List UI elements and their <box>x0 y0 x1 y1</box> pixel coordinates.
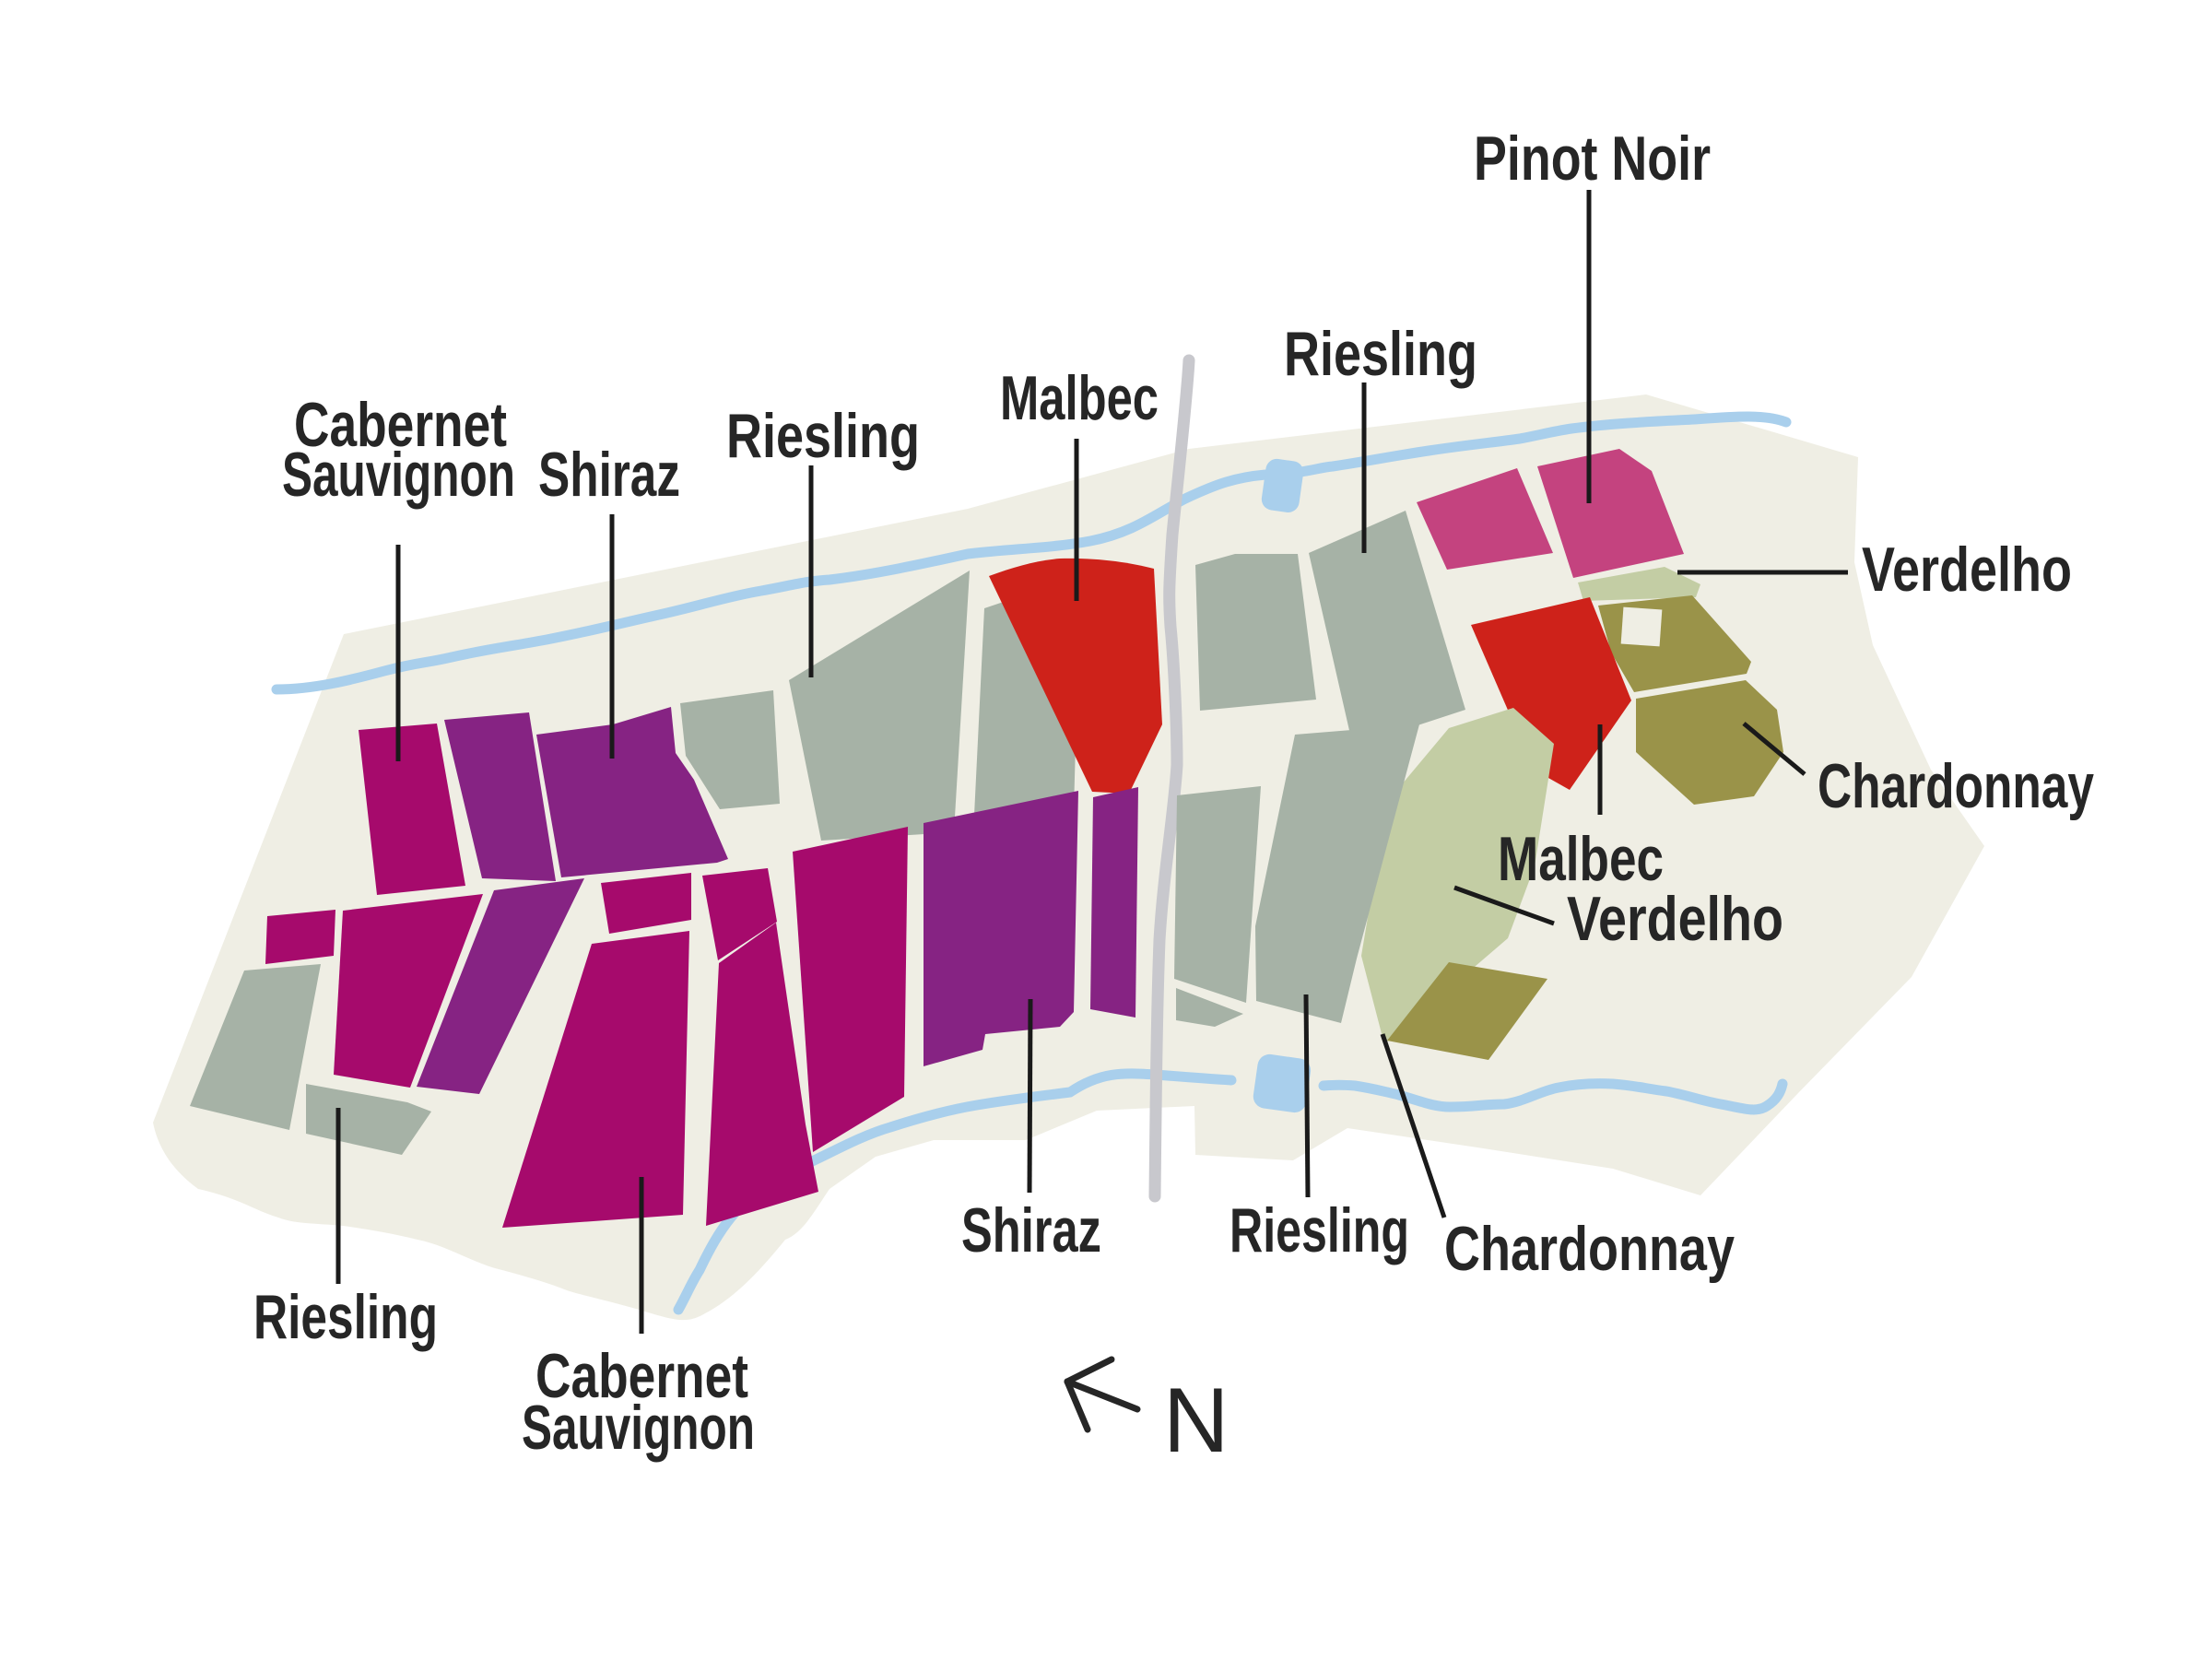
svg-text:Verdelho: Verdelho <box>1862 535 2072 605</box>
svg-text:Riesling: Riesling <box>726 401 920 471</box>
svg-text:Chardonnay: Chardonnay <box>1818 751 2094 821</box>
svg-text:Pinot Noir: Pinot Noir <box>1474 124 1711 194</box>
svg-text:Riesling: Riesling <box>1284 319 1477 389</box>
svg-text:Sauvignon: Sauvignon <box>282 440 515 510</box>
svg-text:Verdelho: Verdelho <box>1567 884 1783 954</box>
svg-text:N: N <box>1163 1369 1230 1471</box>
svg-text:Chardonnay: Chardonnay <box>1444 1214 1735 1284</box>
svg-text:Sauvignon: Sauvignon <box>522 1393 755 1463</box>
svg-text:Shiraz: Shiraz <box>961 1195 1101 1265</box>
svg-text:Riesling: Riesling <box>253 1282 438 1352</box>
svg-text:Shiraz: Shiraz <box>538 440 680 510</box>
svg-text:Riesling: Riesling <box>1230 1195 1409 1265</box>
svg-text:Malbec: Malbec <box>1000 363 1159 433</box>
